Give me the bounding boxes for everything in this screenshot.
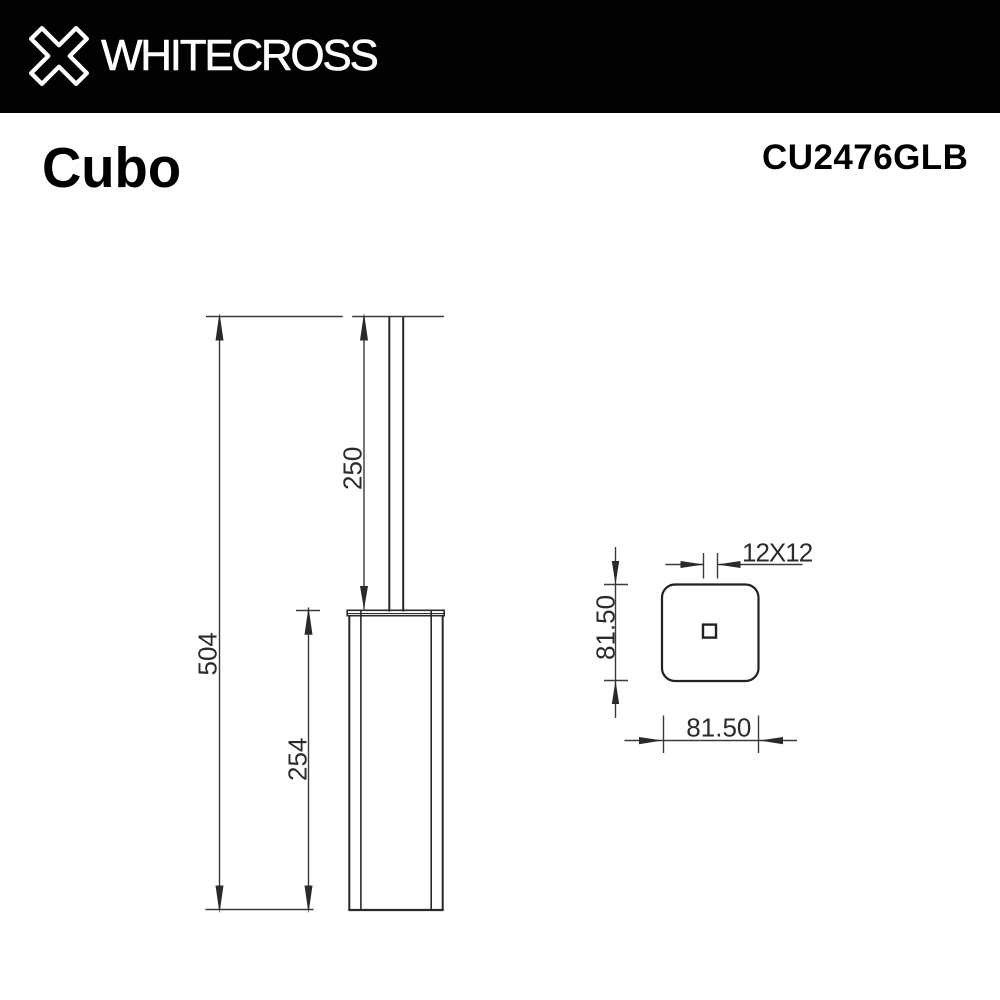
svg-text:250: 250 [338, 447, 368, 490]
svg-text:81.50: 81.50 [591, 595, 621, 660]
svg-text:12X12: 12X12 [742, 538, 813, 568]
svg-text:254: 254 [283, 738, 313, 781]
svg-text:81.50: 81.50 [686, 712, 751, 742]
svg-text:504: 504 [193, 632, 223, 675]
